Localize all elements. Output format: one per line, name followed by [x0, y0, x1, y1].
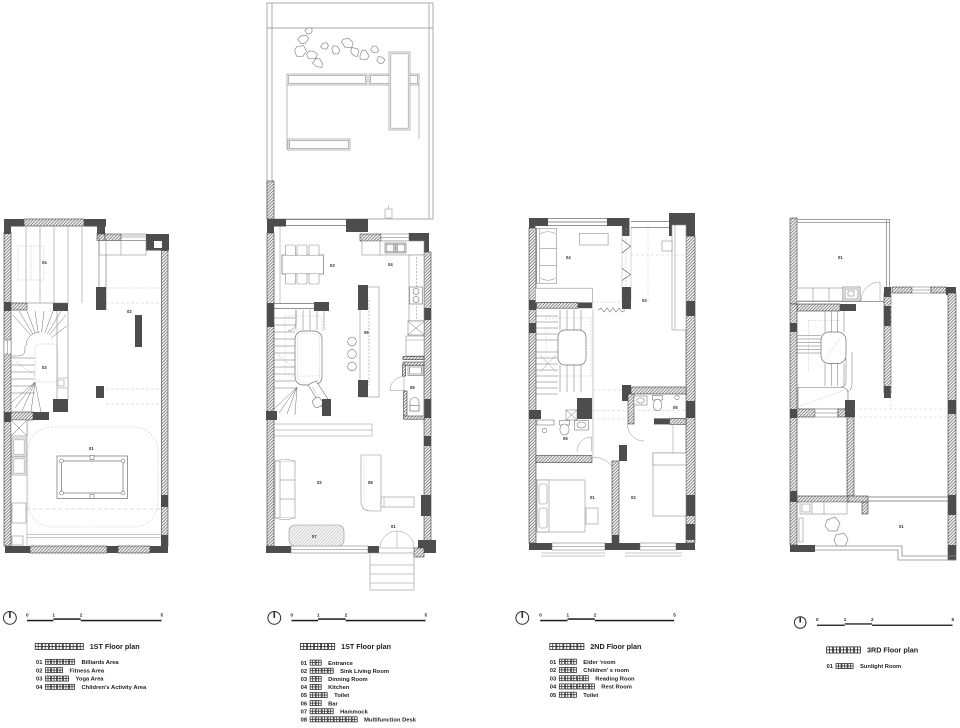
- svg-text:Entrance: Entrance: [328, 661, 354, 667]
- svg-text:06: 06: [364, 330, 369, 335]
- svg-text:04: 04: [550, 685, 557, 691]
- svg-text:Sunlight Room: Sunlight Room: [860, 664, 901, 670]
- svg-text:Dinning Room: Dinning Room: [328, 677, 368, 683]
- svg-text:03: 03: [550, 676, 557, 682]
- svg-text:Sink Living Room: Sink Living Room: [340, 669, 389, 675]
- svg-text:01: 01: [827, 664, 834, 670]
- svg-text:02: 02: [631, 495, 636, 500]
- svg-text:5: 5: [952, 617, 955, 622]
- svg-text:04: 04: [566, 255, 571, 260]
- svg-text:02: 02: [127, 309, 132, 314]
- svg-text:06: 06: [301, 701, 308, 707]
- svg-text:04: 04: [301, 685, 308, 691]
- svg-text:08: 08: [301, 718, 308, 724]
- svg-text:1ST Floor plan: 1ST Floor plan: [341, 642, 391, 651]
- svg-text:07: 07: [301, 709, 307, 715]
- svg-text:Reading Roon: Reading Roon: [595, 676, 635, 682]
- svg-text:0: 0: [291, 613, 294, 618]
- svg-text:5: 5: [161, 613, 164, 618]
- svg-text:03: 03: [330, 263, 335, 268]
- svg-text:04: 04: [388, 262, 393, 267]
- svg-text:Children’ s room: Children’ s room: [583, 668, 629, 674]
- svg-text:0: 0: [539, 613, 542, 618]
- svg-text:Toilet: Toilet: [334, 693, 349, 699]
- svg-text:05: 05: [673, 405, 678, 410]
- svg-text:Multifunction Desk: Multifunction Desk: [364, 718, 417, 724]
- svg-text:05: 05: [550, 693, 557, 699]
- svg-text:Elder ‘room: Elder ‘room: [583, 660, 615, 666]
- svg-text:Toilet: Toilet: [583, 693, 598, 699]
- svg-text:2: 2: [80, 613, 83, 618]
- svg-text:Billiards Area: Billiards Area: [82, 660, 120, 666]
- svg-text:03: 03: [301, 677, 308, 683]
- svg-text:04: 04: [36, 685, 43, 691]
- svg-text:1ST Floor plan: 1ST Floor plan: [90, 642, 140, 651]
- svg-text:01: 01: [899, 524, 904, 529]
- svg-text:5: 5: [673, 613, 676, 618]
- svg-text:03: 03: [42, 365, 47, 370]
- svg-text:02: 02: [301, 669, 307, 675]
- svg-text:01: 01: [550, 660, 557, 666]
- svg-text:2: 2: [345, 613, 348, 618]
- svg-text:07: 07: [312, 534, 317, 539]
- svg-text:03: 03: [642, 298, 647, 303]
- svg-text:Hammock: Hammock: [340, 709, 368, 715]
- svg-text:2: 2: [871, 617, 874, 622]
- svg-text:01: 01: [89, 446, 94, 451]
- svg-text:01: 01: [301, 661, 308, 667]
- svg-text:Kitchen: Kitchen: [328, 685, 350, 691]
- svg-text:2: 2: [594, 613, 597, 618]
- svg-text:1: 1: [317, 613, 320, 618]
- svg-text:Fitness Area: Fitness Area: [70, 668, 105, 674]
- svg-text:1: 1: [52, 613, 55, 618]
- svg-text:Yoga Area: Yoga Area: [76, 677, 105, 683]
- svg-text:05: 05: [301, 693, 308, 699]
- svg-text:08: 08: [368, 480, 373, 485]
- svg-text:01: 01: [36, 660, 43, 666]
- svg-text:01: 01: [391, 524, 396, 529]
- svg-text:01: 01: [590, 495, 595, 500]
- svg-text:05: 05: [563, 436, 568, 441]
- svg-text:Rest Room: Rest Room: [601, 685, 632, 691]
- svg-text:03: 03: [36, 677, 43, 683]
- svg-text:01: 01: [838, 255, 843, 260]
- svg-text:Bar: Bar: [328, 701, 338, 707]
- svg-text:02: 02: [550, 668, 556, 674]
- svg-text:1: 1: [844, 617, 847, 622]
- svg-text:02: 02: [36, 668, 42, 674]
- svg-text:0: 0: [816, 617, 819, 622]
- svg-text:05: 05: [410, 385, 415, 390]
- svg-text:2ND Floor plan: 2ND Floor plan: [590, 642, 641, 651]
- svg-text:Children's Activity Area: Children's Activity Area: [82, 685, 148, 691]
- svg-text:02: 02: [317, 480, 322, 485]
- svg-text:1: 1: [567, 613, 570, 618]
- svg-text:0: 0: [26, 613, 29, 618]
- svg-text:04: 04: [42, 260, 47, 265]
- svg-text:5: 5: [425, 613, 428, 618]
- svg-text:3RD Floor plan: 3RD Floor plan: [867, 645, 918, 654]
